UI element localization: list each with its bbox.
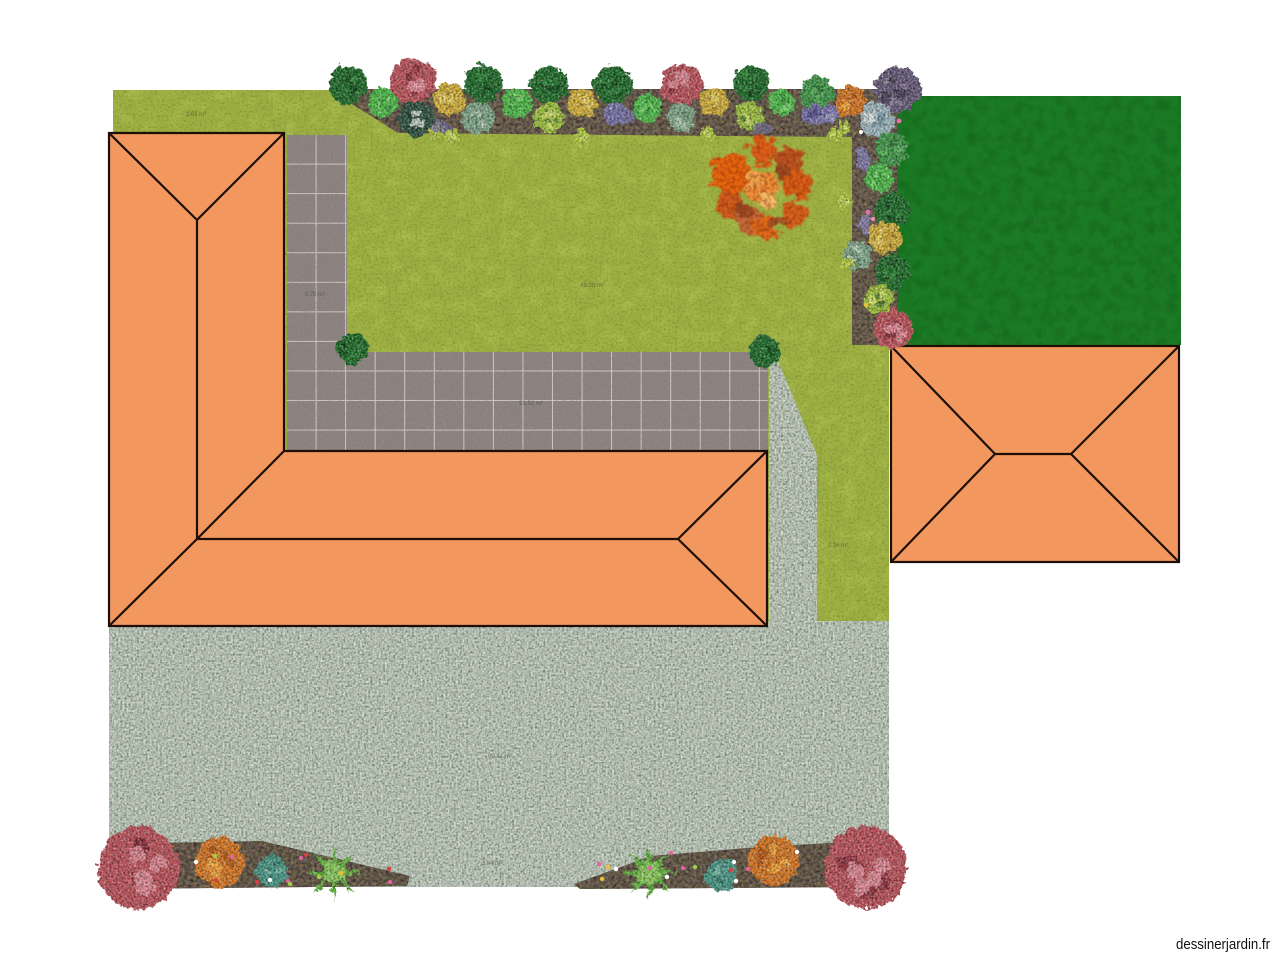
svg-text:3.81 m²: 3.81 m² <box>186 112 206 118</box>
svg-text:90.41 m²: 90.41 m² <box>488 754 512 760</box>
svg-text:20.7 m²: 20.7 m² <box>1028 220 1048 226</box>
svg-text:3.84 m²: 3.84 m² <box>482 861 502 867</box>
svg-text:53.52 m²: 53.52 m² <box>519 401 543 407</box>
svg-text:49.38 m²: 49.38 m² <box>580 283 604 289</box>
svg-text:dessinerjardin.fr: dessinerjardin.fr <box>1176 937 1270 953</box>
svg-text:5.75 m²: 5.75 m² <box>305 292 325 298</box>
svg-text:2.34 m²: 2.34 m² <box>828 543 848 549</box>
